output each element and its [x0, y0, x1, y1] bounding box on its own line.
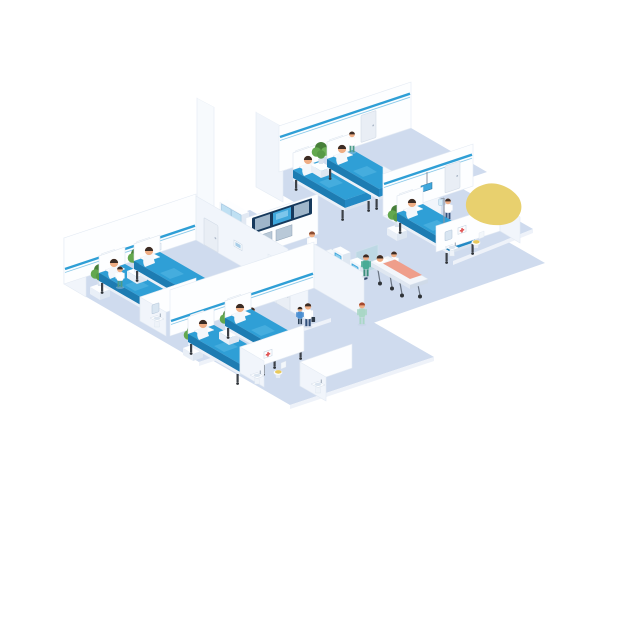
- illustration-canvas: PSH: [0, 0, 640, 640]
- ward-top-door: [361, 111, 376, 143]
- bath-mirror: [445, 230, 452, 241]
- hospital-isometric-scene: PSH: [0, 0, 640, 640]
- bath-mirror: [152, 303, 159, 314]
- doctor-briefcase: [312, 317, 316, 322]
- ward-right-door: [445, 161, 460, 193]
